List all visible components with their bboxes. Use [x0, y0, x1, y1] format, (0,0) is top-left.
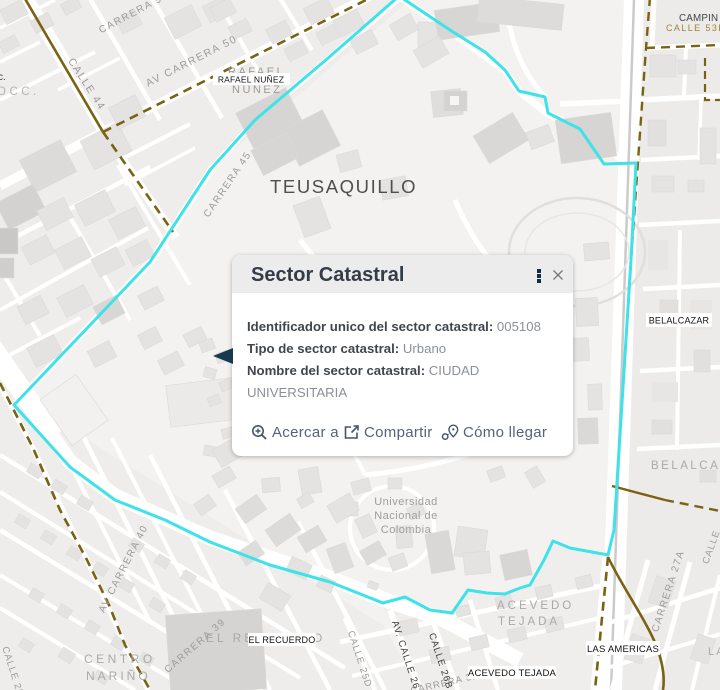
svg-text:NARIÑO: NARIÑO: [86, 669, 151, 683]
svg-text:LAS AMERICAS: LAS AMERICAS: [587, 644, 659, 655]
svg-text:Colombia: Colombia: [381, 524, 432, 536]
svg-text:TEJADA: TEJADA: [498, 616, 560, 628]
svg-text:Universidad: Universidad: [374, 496, 438, 508]
svg-text:LA: LA: [708, 646, 720, 658]
svg-text:BELALCAZAR: BELALCAZAR: [649, 316, 710, 326]
svg-text:OCC.: OCC.: [0, 86, 40, 98]
svg-text:ACEVEDO: ACEVEDO: [497, 600, 574, 612]
svg-text:c.: c.: [0, 72, 6, 83]
svg-text:BELALCAZAR: BELALCAZAR: [651, 460, 720, 472]
svg-text:EL RECUERDO: EL RECUERDO: [249, 635, 316, 645]
svg-text:TEUSAQUILLO: TEUSAQUILLO: [270, 176, 417, 197]
svg-text:CENTRO: CENTRO: [84, 652, 156, 666]
svg-text:ACEVEDO TEJADA: ACEVEDO TEJADA: [468, 668, 557, 679]
svg-text:Nacional de: Nacional de: [374, 510, 438, 522]
svg-text:RAFAEL NUÑEZ: RAFAEL NUÑEZ: [218, 75, 284, 85]
svg-text:CALLE 53B: CALLE 53B: [666, 23, 720, 33]
